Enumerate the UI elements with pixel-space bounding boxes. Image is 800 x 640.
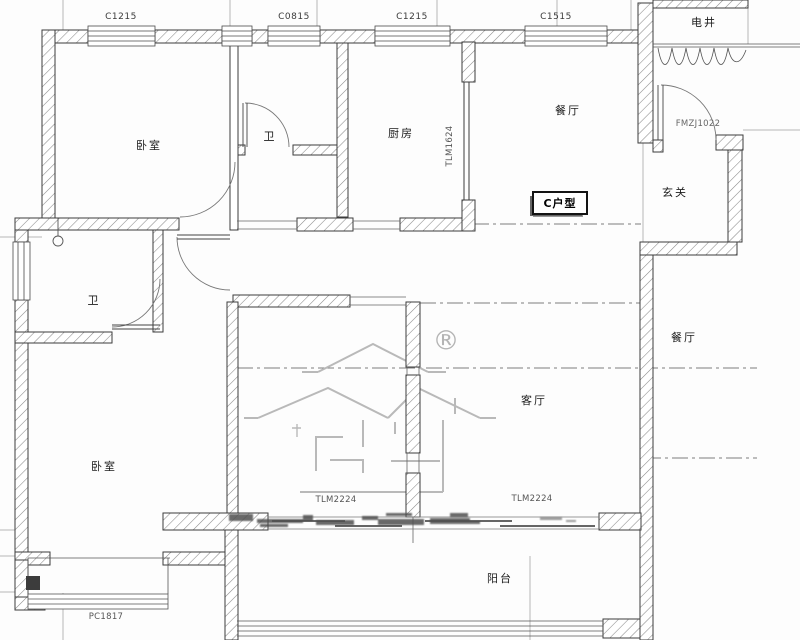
- bay-window-pc1817: [26, 558, 170, 609]
- room-label-balcony: 阳台: [487, 570, 513, 586]
- floorplan-page: C1215 C0815 C1215 C1515 电井 卧室 卫 厨房 餐厅 玄关…: [0, 0, 800, 640]
- window-label-c0815: C0815: [278, 12, 310, 22]
- shaft-louver: [658, 48, 746, 65]
- watermark-logo: [244, 344, 496, 492]
- window-c1515: [525, 26, 607, 46]
- windows: [13, 26, 607, 300]
- room-label-bedroom2: 卧室: [91, 458, 117, 474]
- room-label-bath2: 卫: [88, 292, 101, 308]
- room-label-bedroom1: 卧室: [136, 137, 162, 153]
- watermark-smudge: [229, 513, 576, 527]
- door-label-fmzj1022: FMZJ1022: [676, 119, 721, 129]
- sliding-door-kitchen: [464, 82, 469, 200]
- window-label-c1515: C1515: [540, 12, 572, 22]
- room-label-electric-shaft: 电井: [691, 14, 717, 30]
- unit-type-badge: C户型: [532, 191, 588, 215]
- window-c1215-b: [375, 26, 450, 46]
- window-label-pc1817: PC1817: [89, 612, 124, 622]
- window-label-c1215-b: C1215: [396, 12, 428, 22]
- doors: [112, 85, 716, 329]
- grid-lines: [0, 0, 800, 640]
- room-label-bath1: 卫: [264, 128, 277, 144]
- balcony-railing: [237, 621, 603, 636]
- room-label-dining-right: 餐厅: [671, 329, 697, 345]
- room-label-kitchen: 厨房: [388, 125, 414, 141]
- shaft-detail: [653, 44, 800, 65]
- door-label-tlm2224-left: TLM2224: [316, 495, 357, 505]
- room-label-dining: 餐厅: [555, 102, 581, 118]
- window-label-c1215-a: C1215: [105, 12, 137, 22]
- column-fill: [26, 576, 40, 590]
- window-small: [222, 26, 252, 46]
- door-label-tlm1624: TLM1624: [445, 126, 455, 167]
- floorplan-drawing: [0, 0, 800, 640]
- partition-wall: [230, 43, 238, 230]
- registered-trademark-icon: ®: [433, 326, 460, 357]
- door-label-tlm2224-right: TLM2224: [512, 494, 553, 504]
- room-label-living: 客厅: [521, 392, 547, 408]
- room-label-foyer: 玄关: [662, 184, 688, 200]
- door-arc-entry: [661, 85, 716, 140]
- door-arc-bedroom2: [177, 237, 230, 290]
- window-c1215-a: [88, 26, 155, 46]
- door-arc-bedroom1: [180, 162, 235, 217]
- window-c0815: [268, 26, 320, 46]
- window-left: [13, 242, 30, 300]
- walls: [15, 0, 748, 640]
